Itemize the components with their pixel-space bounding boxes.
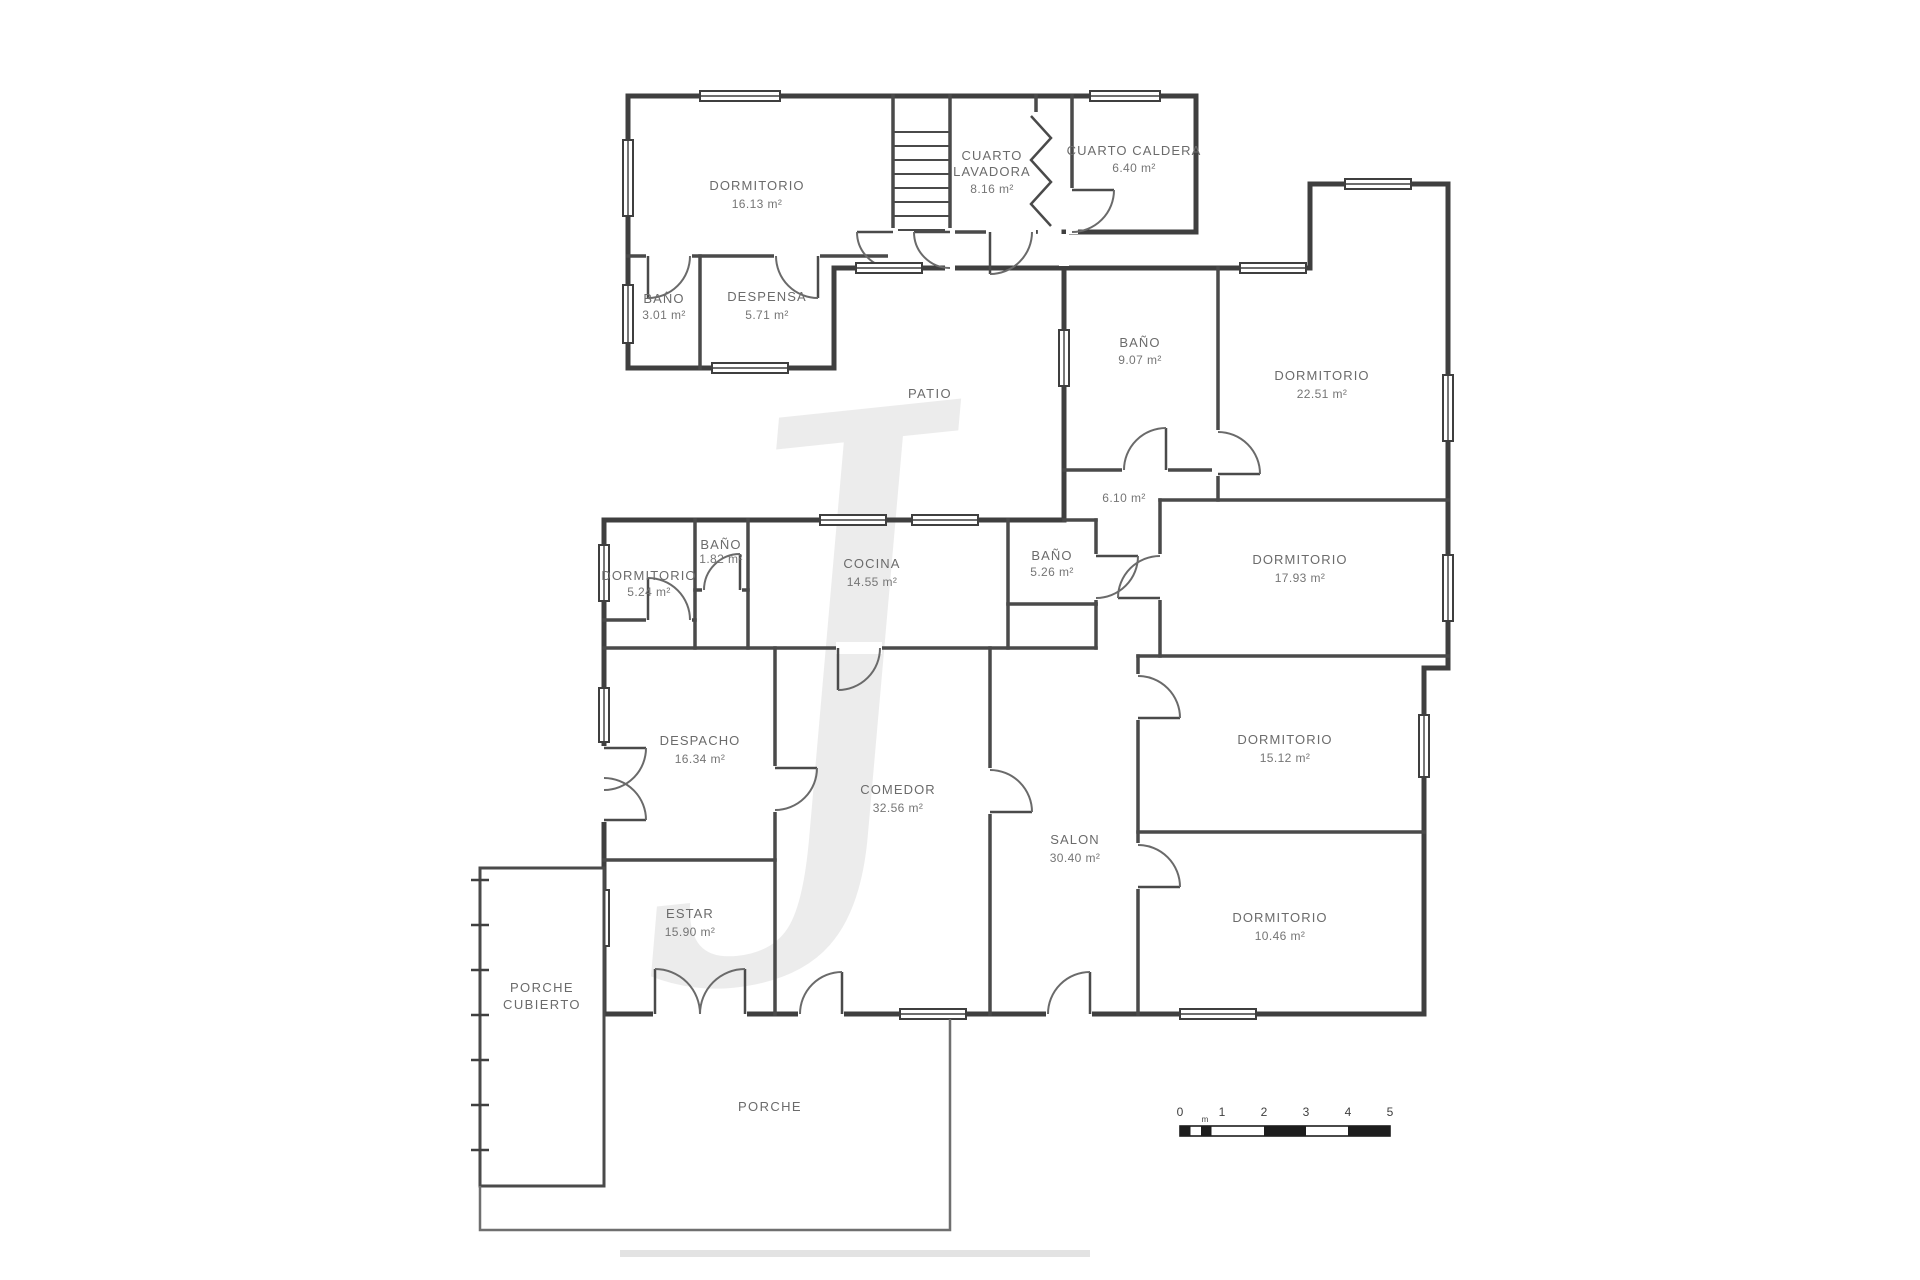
window: [623, 285, 633, 343]
room-area: 14.55 m²: [847, 575, 898, 589]
scale-tick: 0: [1177, 1105, 1184, 1119]
room-label: DORMITORIO: [1237, 732, 1332, 747]
room-area: 17.93 m²: [1275, 571, 1326, 585]
room-label: DORMITORIO: [1232, 910, 1327, 925]
room-area: 16.13 m²: [732, 197, 783, 211]
room-label: DORMITORIO: [1274, 368, 1369, 383]
window: [1345, 179, 1411, 189]
stairs: [893, 132, 950, 230]
room-area: 9.07 m²: [1118, 353, 1161, 367]
room-area: 1.82 m²: [699, 552, 742, 566]
room-area: 32.56 m²: [873, 801, 924, 815]
room-area: 15.90 m²: [665, 925, 716, 939]
window: [1090, 91, 1160, 101]
window: [856, 263, 922, 273]
scale-bar: 0 m 1 2 3 4 5: [1177, 1105, 1394, 1136]
room-label: DORMITORIO: [601, 568, 696, 583]
room-label: CUARTO: [961, 148, 1022, 163]
room-area: 3.01 m²: [642, 308, 685, 322]
room-area: 30.40 m²: [1050, 851, 1101, 865]
window: [623, 140, 633, 216]
scale-unit: m: [1202, 1115, 1209, 1124]
scale-tick: 3: [1303, 1105, 1310, 1119]
hall-area: 6.10 m²: [1102, 491, 1145, 505]
room-area: 10.46 m²: [1255, 929, 1306, 943]
window: [712, 363, 788, 373]
room-label: CUARTO CALDERA: [1067, 143, 1202, 158]
floor-plan-page: J: [0, 0, 1920, 1280]
covered-porch-label: PORCHE: [510, 980, 574, 995]
floor-plan-drawing: J: [0, 0, 1920, 1280]
room-area: 5.26 m²: [1030, 565, 1073, 579]
room-label: BAÑO: [643, 291, 684, 306]
room-label: COMEDOR: [860, 782, 936, 797]
stair-tread: [893, 132, 950, 230]
window: [599, 688, 609, 742]
room-area: 6.40 m²: [1112, 161, 1155, 175]
porch-label: PORCHE: [738, 1099, 802, 1114]
scan-artifact: [620, 1250, 1090, 1257]
window: [912, 515, 978, 525]
room-area: 5.71 m²: [745, 308, 788, 322]
room-area: 15.12 m²: [1260, 751, 1311, 765]
window: [1443, 375, 1453, 441]
room-label: BAÑO: [700, 537, 741, 552]
room-label: SALON: [1050, 832, 1100, 847]
window: [1180, 1009, 1256, 1019]
patio-label: PATIO: [908, 386, 952, 401]
room-label: LAVADORA: [953, 164, 1031, 179]
window: [1059, 330, 1069, 386]
room-label: COCINA: [843, 556, 900, 571]
scale-tick: 1: [1219, 1105, 1226, 1119]
room-label: BAÑO: [1031, 548, 1072, 563]
window: [820, 515, 886, 525]
scale-tick: 2: [1261, 1105, 1268, 1119]
covered-porch-outline: [480, 868, 604, 1186]
room-area: 5.24 m²: [627, 585, 670, 599]
room-area: 8.16 m²: [970, 182, 1013, 196]
scale-tick: 5: [1387, 1105, 1394, 1119]
room-label: DORMITORIO: [1252, 552, 1347, 567]
room-label: DESPACHO: [660, 733, 741, 748]
room-area: 22.51 m²: [1297, 387, 1348, 401]
covered-porch-label: CUBIERTO: [503, 997, 581, 1012]
window: [700, 91, 780, 101]
window: [1419, 715, 1429, 777]
scale-tick: 4: [1345, 1105, 1352, 1119]
window: [1443, 555, 1453, 621]
room-label: DORMITORIO: [709, 178, 804, 193]
room-label: ESTAR: [666, 906, 714, 921]
window: [1240, 263, 1306, 273]
room-label: DESPENSA: [727, 289, 807, 304]
room-label: BAÑO: [1119, 335, 1160, 350]
window: [900, 1009, 966, 1019]
room-area: 16.34 m²: [675, 752, 726, 766]
